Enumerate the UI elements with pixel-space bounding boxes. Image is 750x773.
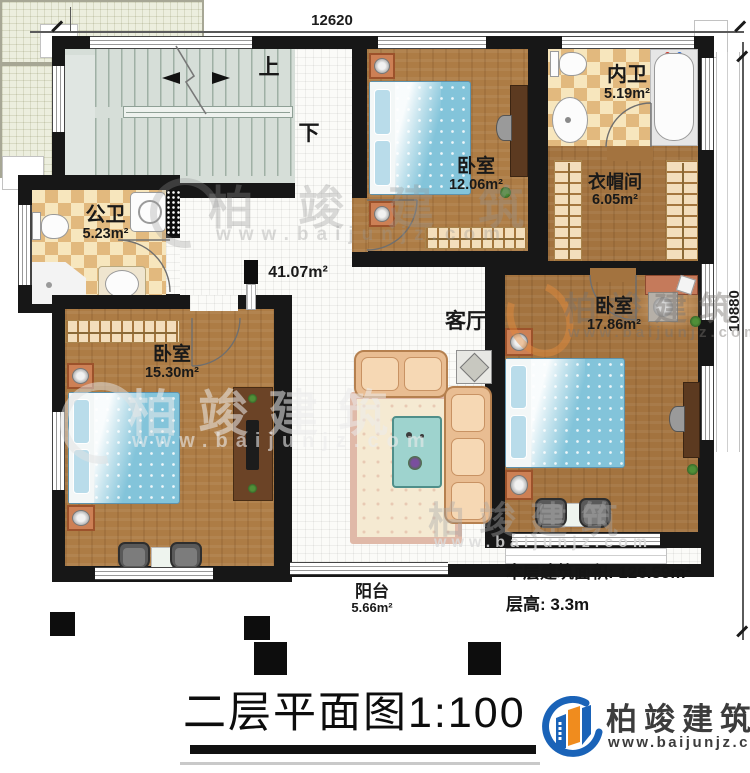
room-area: 5.19m² (586, 86, 668, 102)
plant (248, 394, 257, 403)
plant (248, 484, 257, 493)
room-public-bath (18, 175, 180, 313)
title-underline (190, 745, 536, 754)
room-area: 41.07m² (243, 264, 353, 282)
chair (170, 542, 202, 570)
dimension-label-top: 12620 (296, 12, 368, 29)
dimension-label-right: 10880 (726, 276, 744, 346)
floor-area-label: 本层建筑面积: (506, 563, 614, 582)
chair (579, 498, 611, 528)
room-name: 客厅 (428, 310, 504, 334)
sofa-three-seat (444, 386, 492, 524)
window (18, 205, 32, 285)
pillow (510, 415, 527, 459)
logo-company-name: 柏竣建筑 (606, 694, 750, 739)
room-area: 5.23m² (58, 226, 153, 242)
vent-shaft (166, 190, 180, 236)
room-label-bedroom-left: 卧室 15.30m² (118, 344, 226, 382)
sofa-cushion (404, 357, 442, 391)
plant (687, 464, 698, 475)
pillow (73, 399, 90, 444)
sofa-cushion (451, 438, 485, 476)
room-name: 内卫 (586, 64, 668, 86)
door-opening (352, 198, 368, 252)
sofa-cushion (451, 482, 485, 520)
door-opening (607, 146, 653, 161)
window (701, 264, 714, 320)
plan-title: 二层平面图1:100 (183, 678, 526, 740)
shower-drain (46, 282, 52, 288)
room-name: 卧室 (420, 156, 532, 177)
side-table-decor (460, 353, 490, 383)
floor-height-value: 3.3m (550, 595, 589, 614)
chair (535, 498, 567, 528)
room-area: 5.66m² (330, 601, 414, 616)
closet-rack (425, 227, 527, 249)
tv (246, 420, 259, 470)
window (378, 36, 486, 49)
window (52, 412, 65, 490)
floor-area-note: 本层建筑面积: 126.59m² (506, 558, 691, 583)
pillow (73, 449, 90, 494)
floor-height-note: 层高: 3.3m (506, 590, 691, 615)
room-label-balcony: 阳台 5.66m² (330, 582, 414, 616)
tv-cabinet (233, 387, 273, 501)
pillow (374, 140, 391, 186)
dimension-line-top (30, 31, 744, 33)
column-post (468, 642, 501, 675)
desk-chair (496, 115, 512, 141)
table-decor (406, 432, 412, 438)
window (701, 366, 714, 440)
room-label-bedroom-top: 卧室 12.06m² (420, 156, 532, 194)
floor-plan-canvas: 12620 10880 上 下 (0, 0, 750, 773)
side-table (456, 350, 492, 384)
table-decor (420, 434, 424, 438)
sofa-two-seat (354, 350, 448, 398)
desk (683, 382, 700, 458)
room-bedroom-top (352, 36, 548, 267)
stair-direction-up-label: 上 (252, 56, 286, 80)
sofa-cushion (361, 357, 399, 391)
stair-landing (65, 55, 95, 177)
room-area: 15.30m² (118, 365, 226, 381)
nightstand (369, 53, 395, 79)
room-label-bedroom-right: 卧室 17.86m² (558, 296, 670, 334)
logo-website: www.baijunjz.com (608, 734, 750, 751)
basin-drain (565, 117, 571, 123)
balcony-sliding-door (290, 562, 448, 575)
dimension-extension-line (70, 7, 71, 32)
plan-notes: 本层建筑面积: 126.59m² 层高: 3.3m (506, 558, 691, 615)
title-underline-light (180, 762, 540, 765)
nightstand (369, 201, 395, 227)
wardrobe-rack (666, 160, 698, 262)
nightstand (505, 328, 533, 356)
room-name: 衣帽间 (560, 172, 670, 192)
plant (690, 316, 701, 327)
room-area: 17.86m² (558, 317, 670, 333)
stair-direction-down-label: 下 (292, 122, 326, 146)
window (701, 58, 714, 150)
window (562, 36, 694, 49)
company-logo-icon (536, 696, 604, 762)
pillow (510, 365, 527, 409)
sofa-cushion (451, 394, 485, 432)
room-name: 公卫 (58, 204, 153, 226)
room-name: 阳台 (330, 582, 414, 601)
bed-sheet (531, 359, 585, 467)
room-bedroom-left (52, 295, 292, 582)
nightstand (67, 505, 95, 531)
column (246, 284, 256, 310)
desk-chair (669, 406, 685, 432)
room-name: 卧室 (118, 344, 226, 365)
floor-area-value: 126.59m² (618, 563, 691, 582)
nightstand (67, 363, 94, 389)
closet-rack (65, 320, 180, 343)
room-label-cloakroom: 衣帽间 6.05m² (560, 172, 670, 208)
room-label-living-room: 客厅 (428, 310, 504, 334)
room-area: 6.05m² (560, 192, 670, 208)
toilet-tank (32, 212, 41, 240)
sink (105, 270, 139, 298)
nightstand (505, 470, 533, 500)
column-post (244, 616, 270, 640)
chair (118, 542, 150, 570)
bed (68, 392, 180, 504)
room-area: 12.06m² (420, 177, 532, 193)
room-label-living-area: 41.07m² (243, 264, 353, 282)
toilet (559, 52, 587, 76)
exterior-sill-band (716, 52, 740, 452)
toilet-tank (550, 51, 559, 77)
door-opening (590, 268, 636, 282)
room-label-ensuite-bath: 内卫 5.19m² (586, 64, 668, 103)
stair-treads-lower (95, 118, 293, 176)
door-opening (190, 295, 238, 311)
room-name: 卧室 (558, 296, 670, 317)
column-post (50, 612, 75, 636)
window (95, 567, 213, 580)
table-flowers (408, 456, 422, 470)
pillow (374, 89, 391, 135)
window (512, 533, 660, 546)
stair-handrail (123, 106, 293, 118)
column-post (254, 642, 287, 675)
door-opening (166, 238, 180, 294)
coffee-table (392, 416, 442, 488)
bed-sheet (94, 393, 145, 503)
window (90, 36, 252, 49)
room-label-public-bath: 公卫 5.23m² (58, 204, 153, 243)
window (52, 66, 65, 132)
floor-height-label: 层高: (506, 595, 546, 614)
bed (505, 358, 625, 468)
